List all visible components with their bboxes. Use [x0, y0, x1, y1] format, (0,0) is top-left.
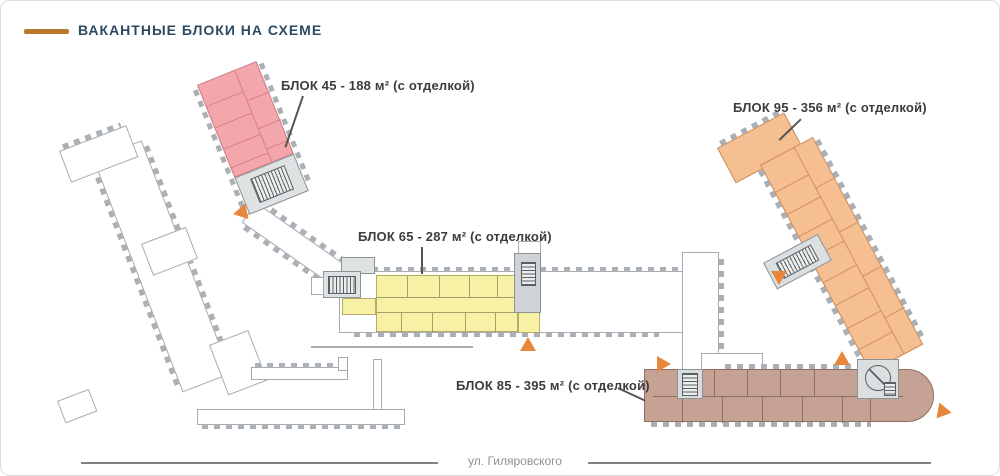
page-title: ВАКАНТНЫЕ БЛОКИ НА СХЕМЕ — [78, 22, 322, 38]
block-95-label: БЛОК 95 - 356 м² (с отделкой) — [733, 100, 927, 115]
windows-strip — [719, 110, 780, 145]
partition — [823, 265, 856, 283]
stairs-icon — [884, 382, 896, 396]
arrow-down-icon — [771, 271, 787, 285]
arrow-up-icon — [834, 351, 850, 365]
street-line-right — [588, 462, 931, 464]
partition — [802, 396, 803, 423]
partition — [377, 312, 517, 313]
partition — [469, 276, 470, 297]
block-65-shape-right[interactable] — [518, 310, 540, 333]
stairs-icon — [682, 373, 698, 396]
partition — [747, 370, 748, 396]
partition — [780, 370, 781, 396]
partition — [787, 197, 820, 215]
windows-strip — [354, 332, 659, 337]
windows-strip — [260, 201, 350, 266]
leader-line-65 — [421, 247, 423, 274]
partition — [432, 312, 433, 333]
partition — [870, 396, 871, 423]
street-label: ул. Гиляровского — [450, 454, 580, 468]
arrow-down-icon — [930, 402, 951, 423]
partition — [839, 221, 860, 233]
partition — [814, 370, 815, 396]
partition — [497, 276, 498, 297]
accent-dash-icon — [24, 29, 69, 34]
partition — [884, 307, 905, 319]
stairs-icon — [328, 276, 356, 294]
partition — [714, 370, 715, 396]
windows-strip — [651, 422, 871, 427]
center-left-cap — [311, 277, 324, 295]
block-45-label: БЛОК 45 - 188 м² (с отделкой) — [281, 78, 475, 93]
courtyard-wall — [311, 346, 473, 348]
arrow-up-icon — [520, 337, 536, 351]
windows-strip — [202, 424, 400, 429]
partition — [682, 396, 683, 423]
block-65-shape[interactable] — [376, 275, 518, 332]
arrow-right-icon — [657, 356, 671, 372]
center-left-stairwell — [323, 271, 361, 298]
stairs-icon — [521, 262, 536, 286]
street-line-left — [81, 462, 438, 464]
block-65-shape-left[interactable] — [342, 298, 376, 315]
stairs-icon — [250, 165, 294, 203]
partition — [848, 311, 881, 329]
block-85-stairwell — [677, 369, 703, 399]
courtyard-upper-band — [251, 367, 348, 380]
block-65-label: БЛОК 65 - 287 м² (с отделкой) — [358, 229, 552, 244]
partition — [224, 134, 261, 150]
courtyard-pillar — [338, 357, 348, 371]
floor-plan-scheme: ВАКАНТНЫЕ БЛОКИ НА СХЕМЕ — [0, 0, 1000, 476]
windows-strip — [62, 122, 122, 149]
partition — [407, 276, 408, 297]
partition — [377, 297, 517, 298]
junction-stairwell — [857, 359, 899, 399]
partition — [815, 177, 836, 189]
partition — [258, 119, 282, 129]
partition — [836, 288, 869, 306]
partition — [859, 332, 892, 350]
partition — [842, 396, 843, 423]
windows-strip — [719, 259, 724, 365]
courtyard-lower-band — [197, 409, 405, 425]
partition — [215, 113, 252, 129]
partition — [207, 91, 244, 107]
partition — [862, 265, 883, 277]
building-left-annex — [57, 389, 97, 424]
center-right-tower — [514, 253, 541, 313]
partition — [246, 91, 270, 101]
partition — [775, 175, 808, 193]
partition — [439, 276, 440, 297]
block-85-label: БЛОК 85 - 395 м² (с отделкой) — [456, 378, 650, 393]
partition — [465, 312, 466, 333]
windows-strip — [255, 363, 344, 368]
partition — [722, 396, 723, 423]
partition — [495, 312, 496, 333]
partition — [401, 312, 402, 333]
partition — [762, 396, 763, 423]
